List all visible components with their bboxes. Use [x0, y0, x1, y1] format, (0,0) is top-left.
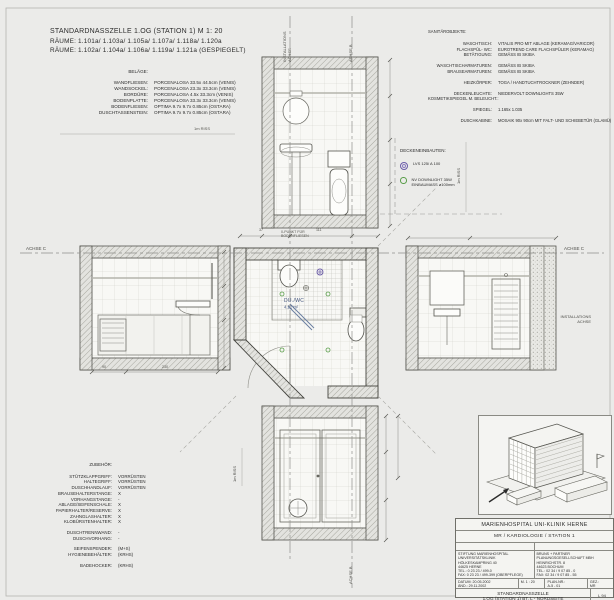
zero-point-annotation: 0-PUNKT FÜR BODENFLIESEN	[281, 230, 309, 238]
legend-item: NV DOWNLIGHT 35W EINBAUMASS ø100mm	[400, 177, 510, 187]
elevation-view-left	[78, 243, 234, 375]
table-row: DUSCHVORHANG:-	[8, 536, 198, 542]
rooms-line-2: RÄUME: 1.102a/ 1.104a/ 1.106a/ 1.119a/ 1…	[50, 46, 246, 55]
axis-label-achse-b-bottom: ACHSE B	[348, 566, 353, 584]
finishes-table: BELÄGE: WANDFLIESEN:PORCENALOSA 33.5x 44…	[60, 69, 260, 116]
table-row: BETÄTIGUNG:GEMÄSS IB SKIBA	[428, 52, 614, 58]
dimension-value: 111	[316, 228, 321, 232]
project-name: MARIENHOSPITAL UNI-KLINIK HERNE	[481, 522, 587, 528]
table-row: DUSCHKABINE:MOSAIK 90x 90cm MIT FALT- UN…	[428, 118, 614, 124]
room-label: DU./WC	[284, 298, 304, 304]
title-block: MARIENHOSPITAL UNI-KLINIK HERNE MR / KAR…	[455, 518, 614, 598]
drawing-sheet: DU./WC 4.22 m²	[0, 0, 614, 600]
ceiling-fixtures-legend: DECKENEINBAUTEN: LVS 125/ A 100 NV DOWNL…	[400, 148, 510, 187]
table-row: DUSCHTASSENSTEIN:OPTIMA 9.7x 9.7x 0.85cm…	[60, 110, 260, 116]
room-area: 4.22 m²	[284, 305, 299, 310]
drawing-title-block: STANDARDNASSZELLE 1.OG (STATION 1) M 1: …	[50, 27, 246, 55]
floor-plan-view: DU./WC 4.22 m²	[232, 242, 380, 400]
building-key-plan	[478, 415, 612, 515]
legend-label: LVS 125/ A 100	[413, 161, 440, 166]
accessories-heading: ZUBEHÖR:	[8, 462, 112, 468]
table-row: BADEHOCKER:(KRHS)	[8, 563, 198, 569]
dimension-value: 90	[102, 365, 106, 369]
elevation-view-top	[240, 55, 380, 230]
drawing-title: STANDARDNASSZELLE 1.OG (STATION 1) M 1: …	[50, 27, 246, 37]
axis-label-achse-c-left: ACHSE C	[26, 246, 46, 251]
axis-label-installations-achse-top: INSTALLATIONS ACHSE	[282, 31, 292, 62]
table-row: HYGIENEBEHÄLTER:(KRHS)	[8, 552, 198, 558]
table-row: BRAUSEARMATUREN:GEMÄSS IB SKIBA	[428, 69, 614, 75]
sanitary-objects-table: SANITÄROBJEKTE: WASCHTISCH:VITALIS PRO M…	[428, 29, 614, 124]
riss-label-3: 1m RISS	[232, 466, 237, 482]
table-row: KLOBÜRSTENHALTER:X	[8, 519, 198, 525]
rooms-line-1: RÄUME: 1.101a/ 1.103a/ 1.105a/ 1.107a/ 1…	[50, 37, 246, 46]
date-cell: DATUM: 20.05.2002 ÄND.: 29.11.2002	[456, 579, 519, 588]
table-row: SPIEGEL:1.165x 1.035	[428, 107, 614, 113]
legend-heading: DECKENEINBAUTEN:	[400, 148, 510, 153]
sheet-number: L 94	[591, 589, 613, 600]
accessories-table: ZUBEHÖR: STÜTZKLAPPGRIFF:VORRÜSTEN HALTE…	[8, 462, 198, 569]
lvs-luminaire-icon	[400, 162, 408, 170]
drawn-by-cell: GEZ.: MR	[588, 579, 613, 588]
dimension-value: 37	[259, 228, 263, 232]
project-department: MR / KARDIOLOGIE / STATION 1	[494, 534, 575, 539]
plan-number-cell: PLAN-NR.: A-5 - 01	[545, 579, 587, 588]
client-address: STIFTUNG MARIENHOSPITAL UNIVERSITÄTSKLIN…	[456, 551, 535, 578]
table-row: KOSMETIKSPIEGEL M. BELEUCHT.:	[428, 96, 614, 102]
legend-item: LVS 125/ A 100	[400, 161, 510, 170]
axis-label-achse-c-right: ACHSE C	[564, 246, 584, 251]
axis-label-achse-b-top: ACHSE B	[348, 44, 353, 62]
scale-cell: M. 1 : 20	[519, 579, 546, 588]
riss-label-2: 1m RISS	[456, 168, 461, 184]
building-axonometric	[479, 416, 611, 514]
finishes-heading: BELÄGE:	[60, 69, 148, 75]
elevation-view-right	[404, 243, 558, 375]
downlight-icon	[400, 177, 407, 184]
legend-label: NV DOWNLIGHT 35W EINBAUMASS ø100mm	[412, 177, 455, 187]
elevation-view-bottom	[240, 402, 408, 545]
sheet-title: STANDARDNASSZELLE 1.OG (STATION 1) BT. L…	[456, 589, 591, 600]
table-row: HEIZKÖRPER:TOGA / HANDTUCHTROCKNER (ZEHN…	[428, 80, 614, 86]
dimension-value: 230	[162, 365, 168, 369]
axis-label-installations-achse-right: INSTALLATIONS ACHSE	[545, 314, 591, 324]
sanitary-heading: SANITÄROBJEKTE:	[428, 29, 614, 35]
riss-label-1: 1m RISS	[194, 126, 210, 131]
architect-address: BRUNS + PARTNER PLANUNGSGESELLSCHAFT MBH…	[535, 551, 614, 578]
